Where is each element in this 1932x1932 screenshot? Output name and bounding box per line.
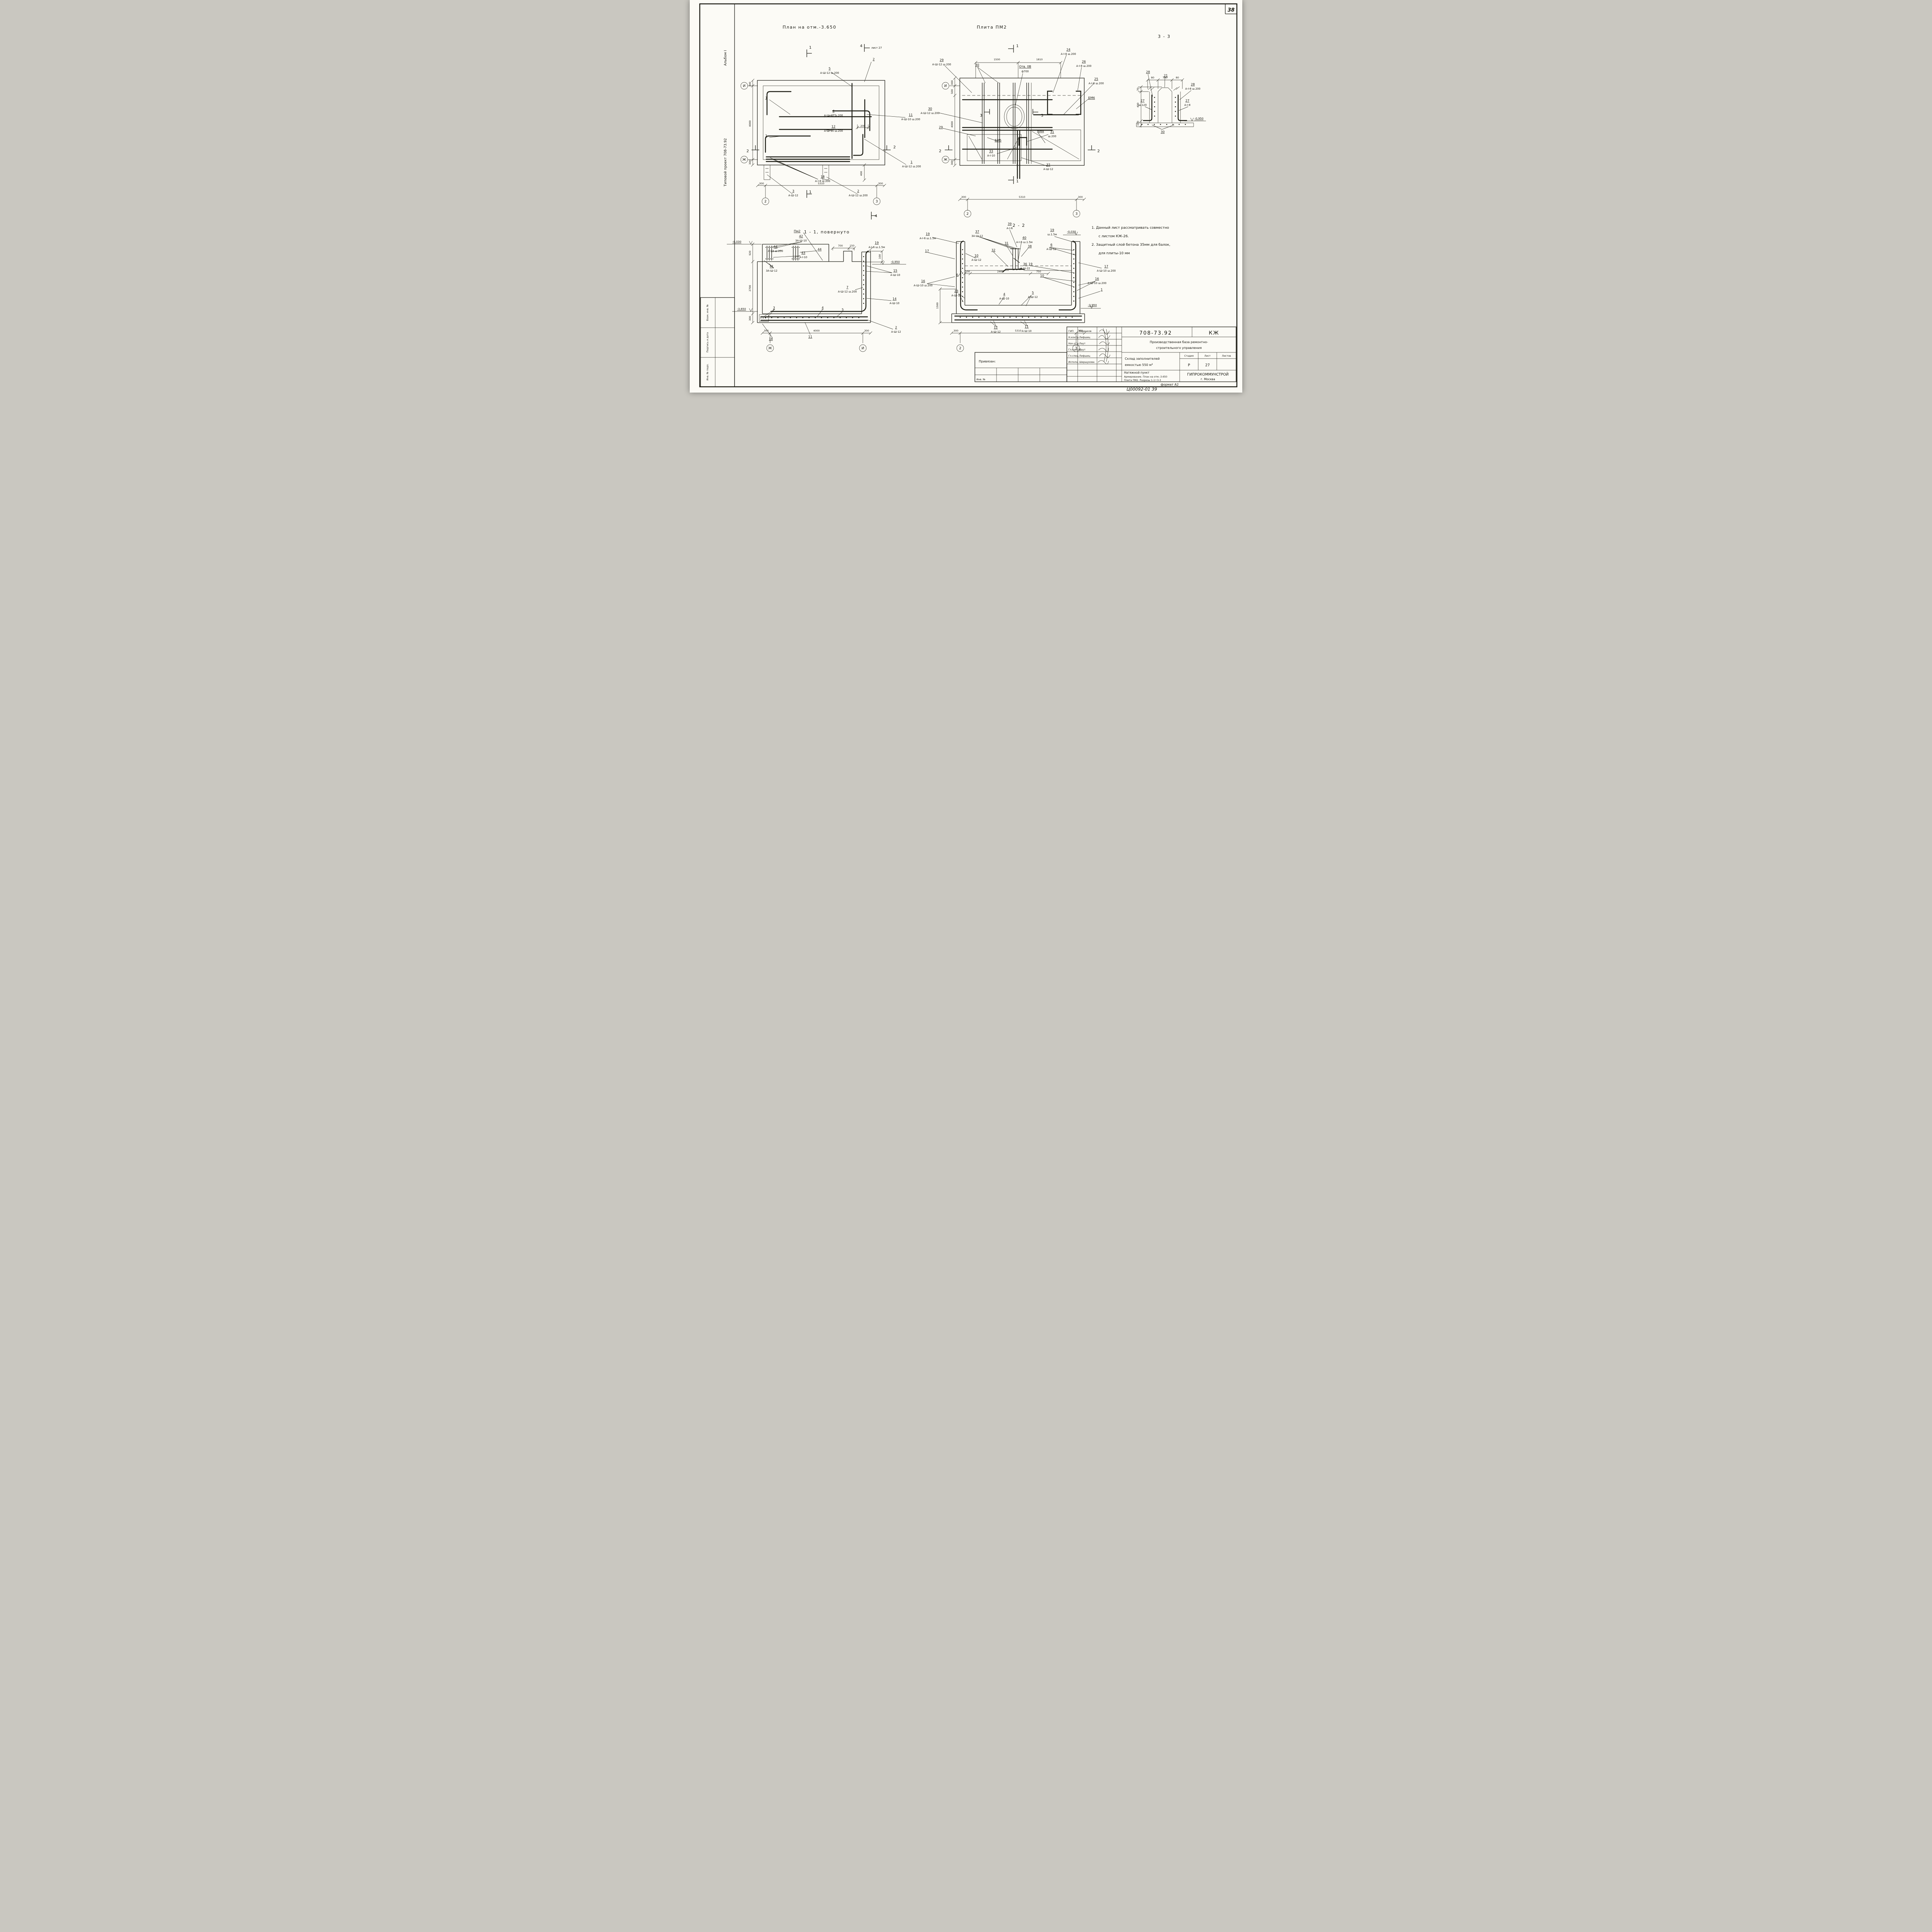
dim-400: 400 <box>860 171 863 176</box>
callout-4-spec: А-Ш-12 ш.200 <box>824 114 843 117</box>
plan-3650-stubs <box>764 165 829 180</box>
dim-300: 300 <box>748 82 752 87</box>
callout-44b: 44 <box>818 248 821 251</box>
dim-300: 300 <box>864 329 869 332</box>
dim-4000: 4000 <box>748 121 752 127</box>
callout-30: 30 <box>975 63 979 67</box>
frame-lines <box>735 4 1237 387</box>
callout-15: 15 <box>893 269 897 272</box>
callout-10b: 10 <box>1040 274 1044 277</box>
callout-24-spec: А-I-8 ш.200 <box>1061 53 1076 56</box>
org-title-line-1: Производственная база ремонтно- <box>1150 340 1208 344</box>
section4-mark: 4 <box>875 214 877 218</box>
callout-7-spec: А-Ш-12 ш.200 <box>838 290 857 293</box>
dim-300: 300 <box>764 329 769 332</box>
plan-3650-title: План на отм.-3.650 <box>782 25 836 30</box>
callout-33: 33 <box>989 150 993 153</box>
callout-23-spec: А-Ш-12 <box>951 294 961 297</box>
callout-16-right-spec: А-Ш-10 ш.200 <box>1088 282 1107 285</box>
axis-i: И <box>862 347 864 350</box>
callout-16-left-spec: А-Ш-10 ш.200 <box>914 284 933 287</box>
dim-100: 100 <box>878 254 881 259</box>
section3-mark: 3 <box>1041 114 1043 118</box>
dim-80: 80 <box>1176 76 1179 79</box>
section-3-3: 3 - 3 80 700 80 70 400 100 28 21 28 А-I-… <box>1136 34 1206 134</box>
callout-5: 5 <box>1032 291 1034 294</box>
blueprint-sheet: 38 Альбом I Типовой проект 708-73.92 Вза… <box>690 0 1242 393</box>
dim-300: 300 <box>954 329 958 332</box>
org-title-line-2: строительного управления <box>1156 346 1202 350</box>
project-code: 708-73.92 <box>1139 330 1172 336</box>
drawing-canvas: 38 Альбом I Типовой проект 708-73.92 Вза… <box>690 0 1242 393</box>
callout-28-right: 28 <box>1191 83 1195 86</box>
callout-14-spec: А-Ш-10 <box>889 302 899 305</box>
sheet-value: 27 <box>1205 363 1210 367</box>
plan-3650-outline <box>757 80 885 165</box>
section-1-1-title: 1 - 1, повернуто <box>804 230 850 235</box>
dim-300: 300 <box>759 182 764 185</box>
callout-18: 18 <box>769 337 773 341</box>
attached-label: Привязан: <box>979 359 996 363</box>
dim-4000: 4000 <box>813 329 820 332</box>
notes: 1. Данный лист рассматривать совместно с… <box>1092 226 1170 255</box>
callout-19-left: 19 <box>926 232 930 236</box>
axis-3: 3 <box>876 200 878 204</box>
section1-mark: 1 <box>1016 179 1019 184</box>
pm2-outline <box>960 78 1084 165</box>
callout-2b-spec: А-Ш-12 ш.200 <box>849 194 868 197</box>
callout-17-left: 17 <box>925 249 929 253</box>
sheets-label: Листов <box>1222 355 1231 357</box>
callout-15-spec: А-Ш-10 <box>890 274 900 277</box>
attached-table-grid <box>975 368 1067 382</box>
dim-500: 500 <box>951 89 954 94</box>
dim-150: 150 <box>850 244 854 247</box>
format-note: формат А2 <box>1161 383 1179 386</box>
callout-17-right: 17 <box>1104 265 1108 268</box>
callout-18: 18 <box>821 175 825 179</box>
callout-28-right-spec: А-I-8 ш.200 <box>1185 87 1200 90</box>
dim-1810: 1810 <box>1036 58 1043 61</box>
callout-32: 32 <box>992 248 995 252</box>
section1-mark: 1 <box>809 190 811 194</box>
callout-1: 1 <box>765 134 767 138</box>
level-3950: -3,950 <box>1088 303 1097 307</box>
sheet-label: Лист <box>1204 355 1211 357</box>
callout-10: 10 <box>975 254 978 257</box>
axis-2: 2 <box>966 212 969 216</box>
dim-300: 300 <box>748 160 752 165</box>
stage-value: Р <box>1188 363 1190 367</box>
callout-7: 7 <box>846 286 848 289</box>
stamp-inv-label: Инв. № подл. <box>706 364 709 380</box>
section4-sheet-ref: лист 27 <box>871 46 882 49</box>
callout-11: 11 <box>1025 325 1029 328</box>
callout-16-left: 16 <box>921 279 925 283</box>
callout-41: 41 <box>770 265 774 268</box>
callout-5: 5 <box>828 67 830 70</box>
callout-11-spec: А-Ш-10 <box>1022 330 1031 333</box>
callout-3: 3 <box>773 306 775 310</box>
callout-29-bottom: 29 <box>939 126 943 129</box>
dim-2460: 2460 <box>997 270 1004 273</box>
role-glspec: Гл.спец. <box>1068 355 1079 357</box>
section1-mark: 1 <box>809 46 811 50</box>
dim-5310: 5310 <box>818 182 825 185</box>
note-2-line-2: для плиты-10 мм <box>1099 252 1130 255</box>
callout-21: 21 <box>1164 74 1168 77</box>
inventory-handwritten: Ц00092-01 39 <box>1127 387 1157 392</box>
callout-19-left-spec: А-I-6 ш.1.5м <box>920 237 936 240</box>
callout-5-spec: А-Ш-12 ш.200 <box>820 71 839 75</box>
callout-12-spec: А-Ш-12 <box>991 330 1000 333</box>
callout-19-spec: А-I-6 ш.1.5м <box>869 246 885 249</box>
dim-100: 100 <box>965 270 970 273</box>
section1-mark: 1 <box>1016 44 1019 48</box>
callout-1: 1 <box>765 96 767 100</box>
axis-2: 2 <box>764 200 767 204</box>
margin-stamp-grid <box>701 298 735 387</box>
level-0950: -0,950 <box>891 260 900 264</box>
section2-mark: 2 <box>893 145 896 150</box>
dim-750: 750 <box>1036 270 1041 273</box>
callout-33-spec: А-I-10 <box>987 154 995 157</box>
callout-2-spec: А-Ш-12 <box>891 330 901 333</box>
org-name: ГИПРОКОММУНСТРОЙ <box>1187 372 1228 377</box>
callout-2: 2 <box>895 326 897 329</box>
callout-6: 6 <box>1050 243 1052 247</box>
axis-zh: Ж <box>768 347 772 350</box>
opening-label: Отв. 0В <box>1019 65 1031 68</box>
callout-24: 24 <box>1066 48 1070 51</box>
name-nachotd: Лаут <box>1079 342 1085 345</box>
axis-3: 3 <box>1075 212 1078 216</box>
callout-25: 25 <box>1094 77 1098 81</box>
opening-diameter: ф700 <box>1022 70 1029 73</box>
dim-70: 70 <box>1136 88 1139 91</box>
dim-80: 80 <box>1151 76 1154 79</box>
section3-mark: 3 <box>980 114 982 118</box>
signature-scribbles <box>1098 328 1110 364</box>
callout-38: 38 <box>1028 245 1032 248</box>
content-line-3: Плита ПМ2. Разрезы 1-1÷3-3 <box>1124 379 1161 382</box>
beam-bm6-label: БМ6 <box>1088 96 1095 100</box>
callout-30-left: 30 <box>928 107 932 111</box>
object-line-1: Склад заполнителей <box>1125 357 1160 361</box>
callout-28: 28 <box>1146 70 1150 74</box>
level-0030: -0,030 <box>732 240 742 243</box>
callout-19: 19 <box>875 241 879 245</box>
callout-32-spec: А-Ш-12 <box>1043 168 1053 171</box>
margin-album-label: Альбом I <box>724 50 728 66</box>
content-line-2: Армирование. План на отм.-3.650 <box>1124 376 1167 378</box>
pm2-opening-outer <box>1004 105 1024 129</box>
callout-4-spec: А-Ш-10 <box>999 297 1009 300</box>
callout-30-left-spec: А-Ш-12 ш.200 <box>921 112 940 115</box>
section2-mark: 2 <box>939 149 941 153</box>
callout-37-spec: 3А-Ш-12 <box>971 235 983 238</box>
s11-dim-leader-lines <box>751 233 893 343</box>
page-number: 38 <box>1228 7 1235 13</box>
callout-11: 11 <box>808 335 812 338</box>
callout-1-right-spec: А-Ш-12 ш.200 <box>902 165 921 168</box>
name-ispoln: Шершукова <box>1079 361 1094 364</box>
callout-39-spec: А-I-6 <box>1007 227 1013 230</box>
callout-16-right: 16 <box>1095 277 1099 281</box>
callout-6-spec: А-Ш-12 <box>1046 248 1056 251</box>
callout-36-spec: А-Ш-22 <box>1020 267 1030 270</box>
callout-36: 36 <box>1023 262 1027 266</box>
dim-4000: 4000 <box>951 121 954 128</box>
note-1-line-1: 1. Данный лист рассматривать совместно <box>1092 226 1169 230</box>
axis-i: И <box>743 84 746 88</box>
callout-40: 40 <box>1022 236 1026 240</box>
inventory-label: Инв. № <box>976 378 985 381</box>
name-glkonstr: Лаут <box>1079 349 1085 351</box>
margin-project-label: Типовой проект 708-73.92 <box>724 138 728 187</box>
dim-700: 700 <box>838 244 843 247</box>
plate-pm2-title: Плита ПМ2 <box>977 25 1007 30</box>
callout-40-spec: А-I-6 ш.1.5м <box>1016 241 1032 244</box>
callout-32: 32 <box>1046 163 1050 167</box>
name-gip: Коренков <box>1079 330 1092 333</box>
callout-5-spec: А-Ш-12 <box>1028 296 1037 299</box>
dim-200: 200 <box>861 124 865 128</box>
name-nkontr: Лифшиц <box>1079 336 1090 339</box>
dim-1500: 1500 <box>994 58 1000 61</box>
object-line-2: емкостью 550 м³ <box>1125 363 1153 367</box>
margin-stamp-box <box>701 298 735 387</box>
callout-19-right-spec: ш.1.5м <box>1048 233 1057 236</box>
beam-bm4-label: БМ4 <box>1037 129 1044 133</box>
callout-10-spec: А-Ш-12 <box>971 259 981 262</box>
sheet-frame <box>700 4 1237 387</box>
axis-2: 2 <box>959 347 961 350</box>
stamp-vzam-label: Взам. инв. № <box>706 304 709 321</box>
callout-5: 5 <box>842 308 844 311</box>
callout-11-spec: А-Ш-10 ш.200 <box>901 118 920 121</box>
dim-1500: 1500 <box>936 303 939 309</box>
callout-27-right-spec: А-I-8 <box>1184 104 1190 107</box>
callout-23: 23 <box>954 289 958 293</box>
callout-31: 31 <box>1050 130 1054 134</box>
s33-rebar <box>1143 95 1187 121</box>
callout-41-spec: 3А-Ш-12 <box>766 269 777 272</box>
dim-920: 920 <box>748 251 752 255</box>
pm2-opening-inner <box>1007 107 1022 126</box>
dim-5310: 5310 <box>1015 329 1022 332</box>
axis-zh: Ж <box>742 158 746 162</box>
dim-100: 100 <box>1136 121 1139 126</box>
note-1-line-2: с листом КЖ-26. <box>1099 235 1129 238</box>
plate-pm2-ref: Пм2 <box>794 230 800 233</box>
plan-3650-section-flags <box>752 44 891 219</box>
level-0950: -0,950 <box>1194 117 1204 120</box>
callout-1-right: 1 <box>910 160 912 164</box>
content-line-1: Натяжной пункт <box>1124 371 1150 374</box>
callout-44: 44 <box>774 245 777 248</box>
section-1-1: 1 - 1, повернуто -0,030 -0,950 -3,650 42… <box>727 230 906 352</box>
dim-300: 300 <box>748 316 752 321</box>
callout-6b: 6 <box>956 273 958 277</box>
dim-5310: 5310 <box>1019 196 1026 199</box>
callout-12: 12 <box>994 326 998 329</box>
callout-29-spec: А-Ш-12 ш.200 <box>932 63 951 66</box>
callout-19-mid: 19 <box>1029 262 1032 266</box>
dim-2700: 2700 <box>748 285 752 292</box>
callout-39: 39 <box>1008 222 1012 226</box>
callout-43-spec: А-I-10 <box>799 256 807 259</box>
callout-4: 4 <box>832 109 834 113</box>
callout-43: 43 <box>801 251 805 255</box>
callout-30: 30 <box>1161 130 1165 134</box>
callout-3-spec: А-Ш-12 <box>788 194 798 197</box>
stage-label: Стадия <box>1184 355 1194 357</box>
role-ispoln: Исполн. <box>1068 361 1078 364</box>
drawing-mark: КЖ <box>1209 330 1219 336</box>
attached-table <box>975 352 1067 382</box>
level-0030: -0,030 <box>1067 230 1076 233</box>
s11-stub-bars <box>767 246 798 260</box>
section-3-3-title: 3 - 3 <box>1158 34 1171 39</box>
callout-2: 2 <box>872 58 874 61</box>
note-2-line-1: 2. Защитный слой бетона 35мм для балок, <box>1092 243 1170 247</box>
callout-2b: 2 <box>857 189 859 193</box>
role-nkontr: Н.контр. <box>1068 336 1079 339</box>
name-glspec: Лифшиц <box>1079 355 1090 357</box>
org-city: г. Москва <box>1201 378 1215 381</box>
stamp-podpis-label: Подпись и дата <box>706 332 709 352</box>
callout-26: 26 <box>1082 60 1086 63</box>
s11-outline <box>757 244 871 323</box>
callout-1: 1 <box>1100 288 1102 291</box>
callout-27-left: 27 <box>1141 99 1145 102</box>
callout-42: 42 <box>799 235 803 238</box>
callout-11: 11 <box>909 113 913 117</box>
section2-mark: 2 <box>1097 149 1100 153</box>
callout-31-spec: ш.200 <box>1048 135 1056 138</box>
section4-mark: 4 <box>860 44 862 48</box>
axis-i: И <box>944 84 947 88</box>
callout-12-spec: А-Ш-10 ш.200 <box>824 129 843 133</box>
callout-17-right-spec: А-Ш-10 ш.200 <box>1097 269 1116 272</box>
level-3650: -3,650 <box>737 307 746 311</box>
callout-26-spec: А-I-8 ш.200 <box>1076 65 1091 68</box>
title-block: 708-73.92 КЖ Производственная база ремон… <box>975 327 1236 392</box>
callout-4: 4 <box>821 306 823 310</box>
callout-14: 14 <box>893 297 896 301</box>
axis-zh: Ж <box>944 158 947 162</box>
callout-29: 29 <box>940 58 944 62</box>
s22-hanger-bars <box>1010 248 1020 269</box>
plate-pm2: Плита ПМ2 И Ж 2 3 1 1 3 3 2 2 1500 1810 … <box>921 25 1104 217</box>
role-gip: ГИП <box>1068 330 1074 333</box>
callout-27-left-spec: ш.120 <box>1138 104 1146 107</box>
dim-300: 300 <box>878 182 883 185</box>
role-nachotd: Нач.отд. <box>1068 342 1079 345</box>
dim-300: 300 <box>1078 196 1083 199</box>
dim-300: 300 <box>951 160 954 165</box>
callout-42-spec: 3А-Ш-10 <box>795 239 807 242</box>
section2-mark: 2 <box>747 149 749 153</box>
callout-37: 37 <box>975 230 979 233</box>
section-2-2-title: 2 - 2 <box>1013 223 1026 228</box>
callout-4: 4 <box>1003 293 1005 296</box>
callout-27-right: 27 <box>1185 99 1189 102</box>
callout-19-right: 19 <box>1050 228 1054 232</box>
plan-3650-rebar <box>765 83 871 162</box>
plan-3650-inner-wall <box>763 86 879 160</box>
callout-3: 3 <box>792 189 794 193</box>
dim-300: 300 <box>961 196 966 199</box>
callout-44-spec: А-I-8 ш.200 <box>768 250 783 253</box>
plan-3650: План на отм.-3.650 И Ж 2 3 1 1 4 лист 27… <box>741 25 921 219</box>
callout-25-spec: А-I-8 ш.200 <box>1088 82 1104 85</box>
callout-12: 12 <box>832 125 835 128</box>
beam-bm5-label: БМ5 <box>995 139 1001 142</box>
callout-31: 31 <box>1005 241 1009 245</box>
dim-300: 300 <box>951 80 954 85</box>
